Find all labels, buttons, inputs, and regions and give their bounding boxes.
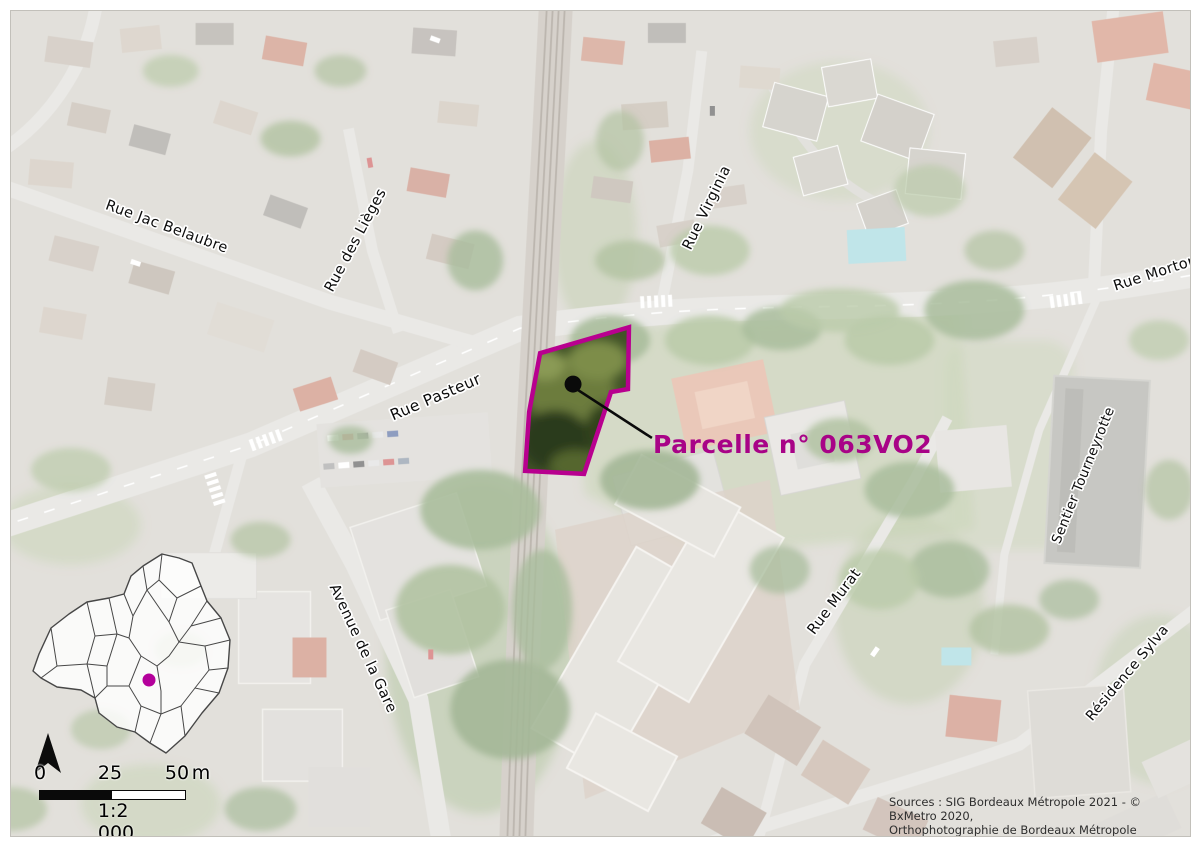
map-canvas[interactable]: Rue Jac Belaubre Rue des Lièges Rue Past… (10, 10, 1191, 837)
scale-tick-0: 0 (34, 762, 46, 784)
location-marker-dot (143, 674, 156, 687)
scale-ratio: 1:2 000 (98, 800, 134, 837)
scale-tick-50: 50 (165, 762, 189, 784)
sources-line-2: Orthophotographie de Bordeaux Métropole (889, 823, 1190, 837)
scale-unit: m (192, 762, 211, 784)
scale-bar-graphic (39, 790, 186, 800)
parcel-label: Parcelle n° 063VO2 (653, 430, 932, 459)
sources-line-1: Sources : SIG Bordeaux Métropole 2021 - … (889, 795, 1190, 823)
page: Rue Jac Belaubre Rue des Lièges Rue Past… (0, 0, 1201, 847)
scale-tick-25: 25 (98, 762, 122, 784)
sources-attribution: Sources : SIG Bordeaux Métropole 2021 - … (889, 795, 1190, 837)
